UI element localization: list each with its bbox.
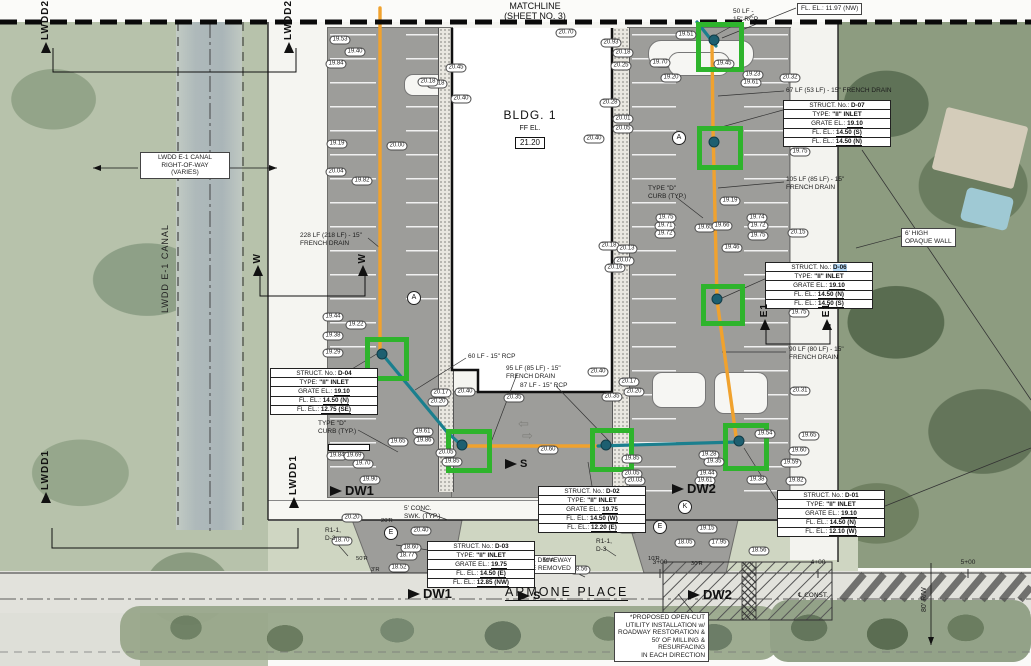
structure-table-row: TYPE: "II" INLET (778, 500, 884, 509)
radius-label: 10'R (543, 558, 555, 564)
callout-label: *PROPOSED OPEN-CUT UTILITY INSTALLATION … (614, 612, 709, 662)
structure-table-row: STRUCT. No.: D-03 (428, 542, 534, 551)
structure-table-row: TYPE: "II" INLET (539, 496, 645, 505)
keynote-circle-a: A (407, 291, 421, 305)
spot-elevation: 19.51 (675, 31, 696, 40)
callout-label: FL. EL.: 11.97 (NW) (797, 3, 862, 15)
spot-elevation: 20.00 (386, 142, 407, 151)
spot-elevation: 20.03 (624, 477, 645, 486)
north-arrow-icon (358, 265, 368, 276)
right-of-way-label: 80' R/W (921, 572, 928, 612)
spot-elevation: 19.46 (721, 244, 742, 253)
building-outline (452, 28, 612, 392)
building-ff-value: 21.20 (515, 137, 545, 149)
spot-elevation: 20.25 (610, 62, 631, 71)
drainage-inlet-icon (457, 440, 468, 451)
structure-table-d-02: STRUCT. No.: D-02TYPE: "II" INLETGRATE E… (538, 486, 646, 533)
spot-elevation: 19.86 (413, 437, 434, 446)
centerline-const-label: ℄ CONST. (798, 591, 828, 599)
structure-table-d-01: STRUCT. No.: D-01TYPE: "II" INLETGRATE E… (777, 490, 885, 537)
radius-label: 3'R (371, 567, 380, 573)
spot-elevation: 19.54 (754, 430, 775, 439)
spot-elevation: 20.40 (454, 388, 475, 397)
spot-elevation: 19.29 (322, 349, 343, 358)
north-arrow-icon (822, 319, 832, 330)
spot-elevation: 19.70 (649, 59, 670, 68)
inlet-highlight-box[interactable] (590, 428, 634, 472)
callout-label: R1-1, D-3 (596, 538, 612, 553)
spot-elevation: 19.20 (660, 74, 681, 83)
station-label: 5+00 (961, 559, 976, 566)
spot-elevation: 19.82 (351, 177, 372, 186)
spot-elevation: 20.60 (537, 446, 558, 455)
spot-elevation: 20.35 (503, 394, 524, 403)
structure-table-row: FL. EL.: 12.75 (SE) (271, 406, 377, 414)
spot-elevation: 20.18 (417, 78, 438, 87)
spot-elevation: 18.56 (748, 547, 769, 556)
spot-elevation: 20.05 (612, 125, 633, 134)
spot-elevation: 19.38 (322, 332, 343, 341)
spot-elevation: 18.05 (674, 539, 695, 548)
structure-table-row: TYPE: "II" INLET (271, 378, 377, 387)
callout-label: 60 LF - 15" RCP (468, 353, 515, 361)
callout-label: 67 LF (53 LF) - 15" FRENCH DRAIN (786, 87, 892, 95)
structure-table-row: TYPE: "II" INLET (784, 110, 890, 119)
callout-label: TYPE "D" CURB (TYP.) (318, 420, 356, 435)
structure-table-d-03: STRUCT. No.: D-03TYPE: "II" INLETGRATE E… (427, 541, 535, 588)
street-name: ARMONE PLACE (505, 585, 628, 601)
flow-marker-dw1: DW1 (330, 483, 374, 498)
spot-elevation: 20.93 (600, 39, 621, 48)
section-marker-lwdd1: LWDD1 (40, 450, 51, 503)
callout-label: 87 LF - 15" RCP (520, 382, 567, 390)
spot-elevation: 19.61 (740, 79, 761, 88)
structure-table-row: FL. EL.: 14.50 (S) (766, 300, 872, 308)
spot-elevation: 19.75 (789, 148, 810, 157)
drainage-inlet-icon (734, 436, 745, 447)
section-marker-lwdd2: LWDD2 (40, 0, 51, 53)
spot-elevation: 19.75 (747, 232, 768, 241)
spot-elevation: 19.85 (621, 455, 642, 464)
spot-elevation: 19.40 (344, 48, 365, 57)
canal-row-note: LWDD E-1 CANAL RIGHT-OF-WAY (VARIES) (140, 152, 230, 179)
drainage-inlet-icon (377, 349, 388, 360)
flow-arrow-icon (505, 459, 517, 469)
north-arrow-icon (289, 497, 299, 508)
flow-arrow-icon (672, 484, 684, 494)
structure-table-row: GRATE EL.: 19.10 (778, 509, 884, 518)
matchline-label: MATCHLINE(SHEET NO. 3) (460, 1, 610, 21)
spot-elevation: 19.70 (352, 460, 373, 469)
spot-elevation: 20.20 (427, 398, 448, 407)
drainage-inlet-icon (601, 440, 612, 451)
inlet-highlight-box[interactable] (697, 126, 743, 170)
spot-elevation: 19.85 (441, 458, 462, 467)
spot-elevation: 20.20 (341, 514, 362, 523)
north-arrow-icon (284, 42, 294, 53)
structure-table-row: GRATE EL.: 19.10 (271, 387, 377, 396)
structure-table-row: FL. EL.: 14.50 (N) (784, 138, 890, 146)
structure-table-row: STRUCT. No.: D-07 (784, 101, 890, 110)
spot-elevation: 20.28 (599, 99, 620, 108)
building-label: BLDG. 1 FF EL. 21.20 (470, 108, 590, 150)
spot-elevation: 19.61 (412, 428, 433, 437)
spot-elevation: 19.38 (746, 476, 767, 485)
spot-elevation: 20.40 (450, 95, 471, 104)
structure-table-row: STRUCT. No.: D-01 (778, 491, 884, 500)
station-label: 4+00 (811, 559, 826, 566)
callout-label: TYPE "D" CURB (TYP.) (648, 185, 686, 200)
structure-table-row: GRATE EL.: 19.10 (784, 119, 890, 128)
structure-table-d-06: STRUCT. No.: D-06TYPE: "II" INLETGRATE E… (765, 262, 873, 309)
traffic-arrow-right-icon: ⇨ (522, 430, 533, 442)
spot-elevation: 19.65 (387, 438, 408, 447)
spot-elevation: 20.17 (618, 378, 639, 387)
spot-elevation: 19.45 (713, 60, 734, 69)
spot-elevation: 20.05 (435, 449, 456, 458)
spot-elevation: 19.59 (780, 459, 801, 468)
north-arrow-icon (41, 492, 51, 503)
keynote-circle-a: A (672, 131, 686, 145)
structure-table-row: STRUCT. No.: D-04 (271, 369, 377, 378)
section-marker-w: W (357, 253, 368, 276)
structure-table-row: FL. EL.: 14.50 (N) (271, 397, 377, 406)
section-marker-lwdd1: LWDD1 (288, 455, 299, 508)
spot-elevation: 20.04 (325, 168, 346, 177)
building-name: BLDG. 1 (470, 108, 590, 122)
flow-arrow-icon (688, 590, 700, 600)
spot-elevation: 19.19 (326, 140, 347, 149)
flow-marker-dw1: DW1 (408, 586, 452, 601)
spot-elevation: 20.40 (410, 527, 431, 536)
structure-table-row: FL. EL.: 14.50 (W) (539, 515, 645, 524)
structure-table-row: STRUCT. No.: D-06 (766, 263, 872, 272)
spot-elevation: 19.65 (798, 432, 819, 441)
structure-table-d-04: STRUCT. No.: D-04TYPE: "II" INLETGRATE E… (270, 368, 378, 415)
drainage-inlet-icon (712, 294, 723, 305)
flow-marker-s: S (505, 458, 527, 470)
structure-table-row: FL. EL.: 14.50 (S) (784, 129, 890, 138)
radius-label: 20'R (381, 518, 393, 524)
structure-table-row: FL. EL.: 14.50 (N) (778, 519, 884, 528)
flow-arrow-icon (408, 589, 420, 599)
structure-table-row: FL. EL.: 12.20 (E) (539, 524, 645, 532)
section-marker-e1: E1 (759, 303, 770, 330)
spot-elevation: 19.82 (785, 477, 806, 486)
site-plan-canvas: 19.5319.4019.8420.1819.1920.0020.0419.82… (0, 0, 1031, 666)
flow-marker-dw2: DW2 (688, 587, 732, 602)
spot-elevation: 19.35 (703, 458, 724, 467)
spot-elevation: 19.66 (711, 222, 732, 231)
structure-table-row: FL. EL.: 12.10 (W) (778, 528, 884, 536)
drainage-inlet-icon (709, 35, 720, 46)
north-arrow-icon (253, 265, 263, 276)
structure-table-row: GRATE EL.: 19.75 (428, 560, 534, 569)
spot-elevation: 20.18 (612, 49, 633, 58)
north-arrow-icon (41, 42, 51, 53)
spot-elevation: 20.20 (623, 388, 644, 397)
french-drain-east (712, 46, 736, 436)
spot-elevation: 19.75 (788, 309, 809, 318)
structure-table-row: GRATE EL.: 19.10 (766, 281, 872, 290)
spot-elevation: 20.17 (430, 389, 451, 398)
structure-table-row: TYPE: "II" INLET (766, 272, 872, 281)
spot-elevation: 19.53 (329, 36, 350, 45)
inlet-highlight-box[interactable] (701, 284, 745, 326)
spot-elevation: 18.77 (396, 552, 417, 561)
keynote-circle-e: E (384, 526, 398, 540)
flow-arrow-icon (330, 486, 342, 496)
structure-table-row: GRATE EL.: 19.75 (539, 505, 645, 514)
spot-elevation: 20.31 (789, 387, 810, 396)
spot-elevation: 19.44 (322, 313, 343, 322)
structure-table-d-07: STRUCT. No.: D-07TYPE: "II" INLETGRATE E… (783, 100, 891, 147)
spot-elevation: 20.15 (787, 229, 808, 238)
spot-elevation: 17.95 (708, 539, 729, 548)
callout-label: 90 LF (80 LF) - 15" FRENCH DRAIN (789, 346, 844, 361)
callout-label: R1-1, D-3 (325, 527, 341, 542)
spot-elevation: 18.52 (388, 564, 409, 573)
drainage-inlet-icon (709, 137, 720, 148)
section-marker-lwdd2: LWDD2 (283, 0, 294, 53)
callout-label: 95 LF (85 LF) - 15" FRENCH DRAIN (506, 365, 561, 380)
canal-name: LWDD E-1 CANAL (160, 218, 170, 313)
spot-elevation: 19.22 (345, 321, 366, 330)
spot-elevation: 20.35 (601, 393, 622, 402)
spot-elevation: 20.13 (616, 245, 637, 254)
callout-label: 228 LF (218 LF) - 15" FRENCH DRAIN (300, 232, 362, 247)
radius-label: 50'R (356, 556, 368, 562)
spot-elevation: 20.01 (612, 115, 633, 124)
structure-table-row: STRUCT. No.: D-02 (539, 487, 645, 496)
callout-label: 6' HIGH OPAQUE WALL (901, 228, 956, 247)
spot-elevation: 20.45 (445, 64, 466, 73)
spot-elevation: 19.72 (654, 230, 675, 239)
callout-label: 105 LF (85 LF) - 15" FRENCH DRAIN (786, 176, 844, 191)
spot-elevation: 20.16 (604, 264, 625, 273)
spot-elevation: 19.15 (696, 525, 717, 534)
spot-elevation: 19.72 (747, 222, 768, 231)
section-marker-w: W (252, 253, 263, 276)
spot-elevation: 20.70 (555, 29, 576, 38)
spot-elevation: 19.60 (788, 447, 809, 456)
station-label: 3+00 (653, 559, 668, 566)
keynote-circle-k: K (678, 500, 692, 514)
curb-type-d-symbol (328, 444, 370, 451)
spot-elevation: 19.19 (719, 197, 740, 206)
spot-elevation: 20.40 (587, 368, 608, 377)
structure-table-row: TYPE: "II" INLET (428, 551, 534, 560)
structure-table-row: FL. EL.: 14.50 (E) (428, 570, 534, 579)
north-arrow-icon (760, 319, 770, 330)
callout-label: 50 LF - 15" RCP (733, 8, 758, 23)
keynote-circle-e: E (653, 520, 667, 534)
radius-label: 30'R (691, 561, 703, 567)
spot-elevation: 19.84 (325, 60, 346, 69)
structure-table-row: FL. EL.: 14.50 (N) (766, 291, 872, 300)
milling-hatch-strokes (842, 574, 1031, 600)
flow-marker-dw2: DW2 (672, 481, 716, 496)
spot-elevation: 20.32 (779, 74, 800, 83)
open-cut-crosshatch (742, 562, 756, 620)
section-marker-e1: E1 (821, 303, 832, 330)
callout-label: 5' CONC. SWK. (TYP.) (404, 505, 440, 520)
building-ff-label: FF EL. (470, 125, 590, 132)
